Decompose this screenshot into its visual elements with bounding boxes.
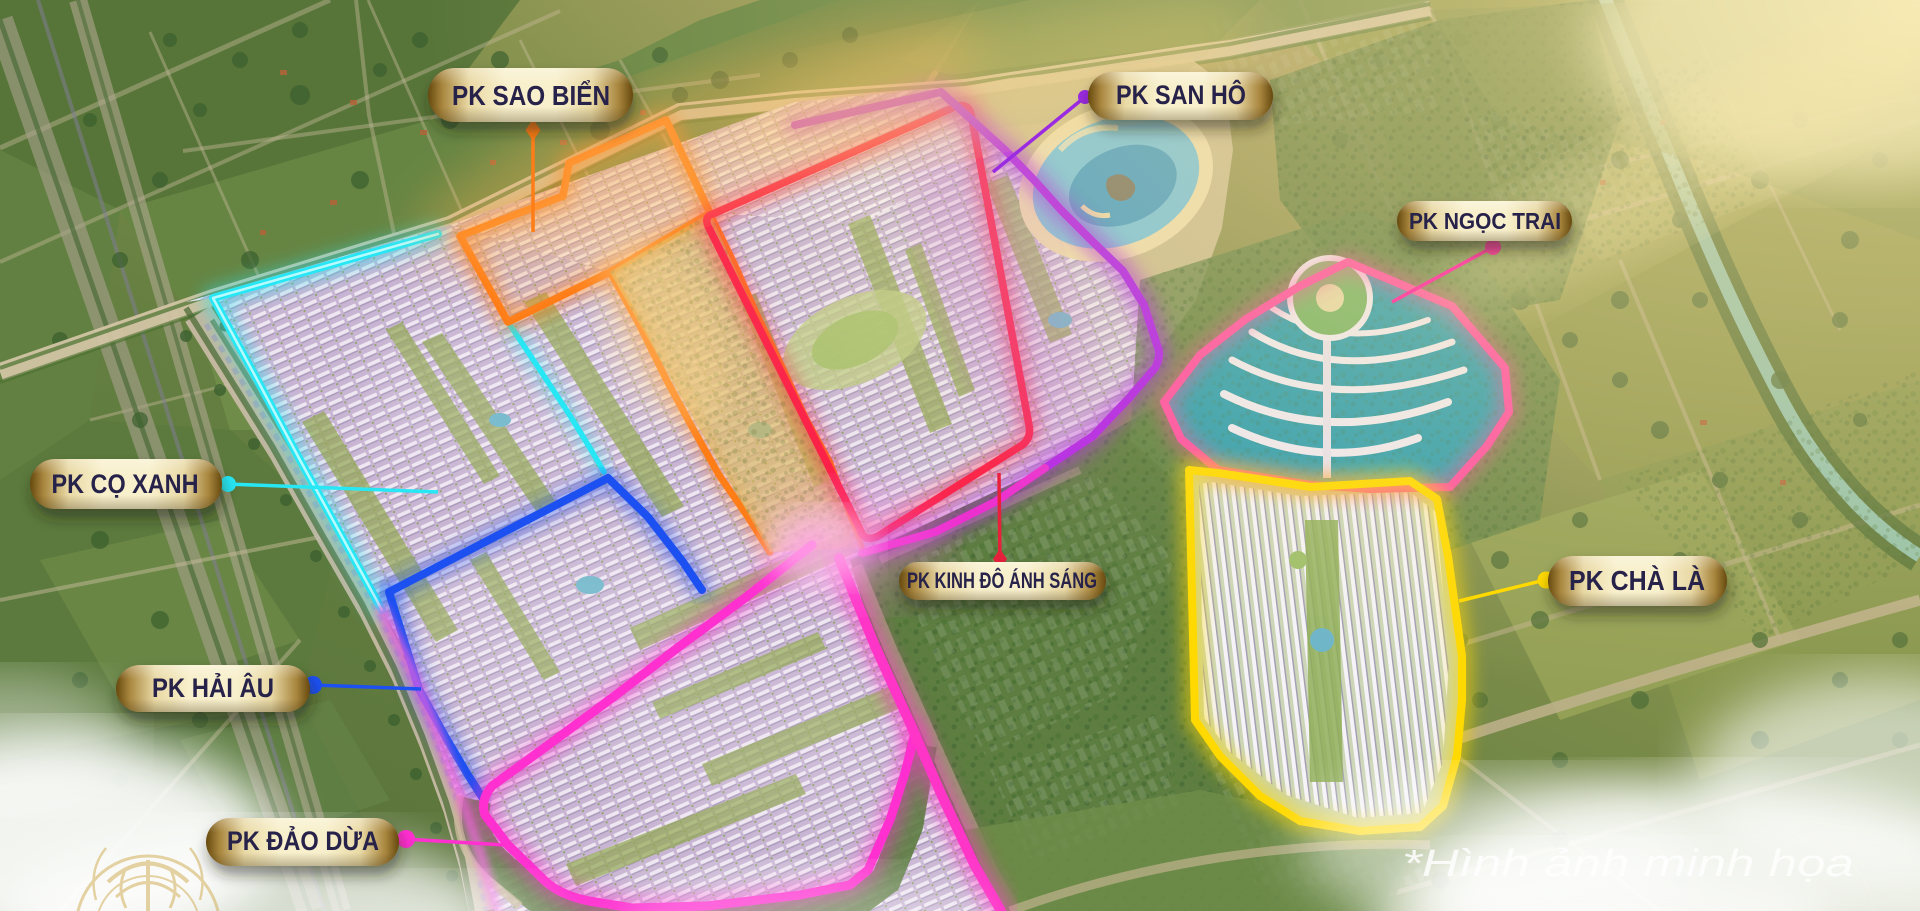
svg-text:PK CHÀ LÀ: PK CHÀ LÀ bbox=[1569, 565, 1705, 596]
svg-text:*Hình ảnh minh họa: *Hình ảnh minh họa bbox=[1402, 843, 1854, 885]
svg-text:PK SAN HÔ: PK SAN HÔ bbox=[1116, 79, 1246, 110]
svg-text:PK HẢI ÂU: PK HẢI ÂU bbox=[152, 671, 274, 703]
svg-text:PK NGỌC TRAI: PK NGỌC TRAI bbox=[1409, 208, 1561, 234]
svg-text:PK CỌ XANH: PK CỌ XANH bbox=[52, 469, 199, 499]
svg-text:PK ĐẢO DỪA: PK ĐẢO DỪA bbox=[227, 824, 379, 856]
svg-text:PK KINH ĐÔ ÁNH SÁNG: PK KINH ĐÔ ÁNH SÁNG bbox=[907, 568, 1097, 593]
svg-text:PK SAO BIỂN: PK SAO BIỂN bbox=[452, 80, 610, 111]
